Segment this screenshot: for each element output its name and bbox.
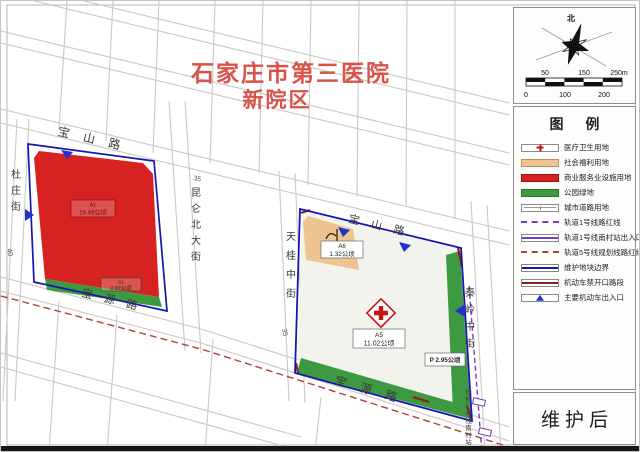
legend-item-medical: 医疗卫生用地 bbox=[521, 140, 631, 155]
legend-label: 机动车禁开口路段 bbox=[564, 277, 624, 288]
road-baoshan-west: 宝山路 bbox=[56, 123, 135, 155]
boundary-line-icon bbox=[522, 267, 558, 269]
scale-100: 100 bbox=[559, 92, 571, 99]
compass-rose-icon bbox=[536, 19, 612, 70]
no-open-line-icon bbox=[522, 282, 558, 284]
legend-item-entrance: 主要机动车出入口 bbox=[521, 290, 631, 305]
label-park-west-code: G1 bbox=[118, 280, 125, 286]
label-medical-code: A5 bbox=[375, 332, 383, 339]
street-tiangui: 天桂中街 bbox=[284, 231, 296, 307]
legend-label: 公园绿地 bbox=[564, 187, 594, 198]
legend-items: 医疗卫生用地 社会福利用地 商业服务业设施用地 公园绿地 城市道路用地 轨道1号… bbox=[521, 140, 631, 305]
legend-panel: 图 例 医疗卫生用地 社会福利用地 商业服务业设施用地 公园绿地 城市道路用地 bbox=[513, 106, 636, 390]
scale-250m: 250m bbox=[610, 70, 628, 77]
legend-label: 医疗卫生用地 bbox=[564, 142, 609, 153]
scale-50: 50 bbox=[541, 70, 549, 77]
label-welfare-area: 1.32公顷 bbox=[329, 250, 355, 258]
scale-bar: 50 150 250m 0 100 200 bbox=[524, 70, 628, 99]
bottom-black-bar bbox=[1, 446, 639, 451]
swatch-commercial bbox=[521, 174, 559, 182]
parcel-commercial bbox=[34, 151, 159, 297]
legend-title: 图 例 bbox=[514, 114, 635, 134]
swatch-rail5-dashed bbox=[521, 249, 559, 257]
legend-label: 社会福利用地 bbox=[564, 157, 609, 168]
legend-item-rail1-line: 轨道1号线路红线 bbox=[521, 215, 631, 230]
legend-item-commercial: 商业服务业设施用地 bbox=[521, 170, 631, 185]
width-mid: 35 bbox=[280, 328, 288, 337]
rail5-dashed-icon bbox=[521, 251, 559, 253]
legend-item-welfare: 社会福利用地 bbox=[521, 155, 631, 170]
swatch-park bbox=[521, 189, 559, 197]
width-left: 40 bbox=[5, 248, 13, 257]
swatch-boundary bbox=[521, 264, 559, 272]
compass-scale-svg: 北 50 150 250m 0 100 200 bbox=[514, 8, 635, 103]
swatch-entrance bbox=[521, 294, 559, 302]
compass-panel: 北 50 150 250m 0 100 200 bbox=[513, 7, 636, 104]
legend-label: 轨道5号线规划线路红线 bbox=[564, 247, 640, 258]
map-title: 石家庄市第三医院 新院区 bbox=[190, 60, 391, 112]
legend-label: 城市道路用地 bbox=[564, 202, 609, 213]
legend-label: 轨道1号线路红线 bbox=[564, 217, 621, 228]
swatch-medical bbox=[521, 144, 559, 152]
scale-200: 200 bbox=[598, 92, 610, 99]
swatch-welfare bbox=[521, 159, 559, 167]
rail1-solid-icon bbox=[522, 237, 558, 239]
label-commercial-code: A1 bbox=[90, 203, 97, 209]
red-cross-icon bbox=[537, 144, 544, 151]
legend-label: 维护地块边界 bbox=[564, 262, 609, 273]
street-qinling: 秦岭中街 bbox=[463, 286, 475, 355]
street-kunlun: 昆仑北大街 bbox=[189, 187, 201, 267]
legend-label: 轨道1号线南村站出入口 bbox=[564, 232, 640, 243]
entrance-triangle-icon bbox=[536, 294, 544, 300]
swatch-road bbox=[521, 204, 559, 212]
title-line1: 石家庄市第三医院 bbox=[190, 60, 391, 86]
label-parking: P 2.95公顷 bbox=[430, 356, 461, 364]
legend-label: 主要机动车出入口 bbox=[564, 292, 624, 303]
legend-item-boundary: 维护地块边界 bbox=[521, 260, 631, 275]
legend-item-no-open: 机动车禁开口路段 bbox=[521, 275, 631, 290]
swatch-no-open bbox=[521, 279, 559, 287]
title-line2: 新院区 bbox=[243, 88, 312, 112]
north-label: 北 bbox=[567, 13, 575, 23]
legend-item-park: 公园绿地 bbox=[521, 185, 631, 200]
status-panel: 维护后 bbox=[513, 392, 636, 445]
width-top: 35 bbox=[193, 175, 202, 183]
legend-item-rail1-station: 轨道1号线南村站出入口 bbox=[521, 230, 631, 245]
label-park-west-area: 0.97公顷 bbox=[110, 284, 132, 292]
road-tick-icon bbox=[540, 206, 541, 210]
street-duzhuang: 杜庄街 bbox=[9, 168, 21, 217]
legend-label: 商业服务业设施用地 bbox=[564, 172, 632, 183]
swatch-rail1-dashed bbox=[521, 219, 559, 227]
planning-map-screenshot: A1 16.49公顷 G1 0.97公顷 A6 1.32公顷 A5 11.02公… bbox=[0, 0, 640, 452]
status-label: 维护后 bbox=[536, 405, 613, 432]
label-commercial-area: 16.49公顷 bbox=[79, 209, 107, 217]
scale-150: 150 bbox=[578, 70, 590, 77]
legend-item-road: 城市道路用地 bbox=[521, 200, 631, 215]
swatch-rail1-station bbox=[521, 234, 559, 242]
scale-0: 0 bbox=[524, 92, 528, 99]
label-welfare-code: A6 bbox=[338, 244, 346, 250]
legend-item-rail5: 轨道5号线规划线路红线 bbox=[521, 245, 631, 260]
label-medical-area: 11.02公顷 bbox=[364, 340, 395, 348]
rail1-dashed-icon bbox=[521, 221, 559, 223]
